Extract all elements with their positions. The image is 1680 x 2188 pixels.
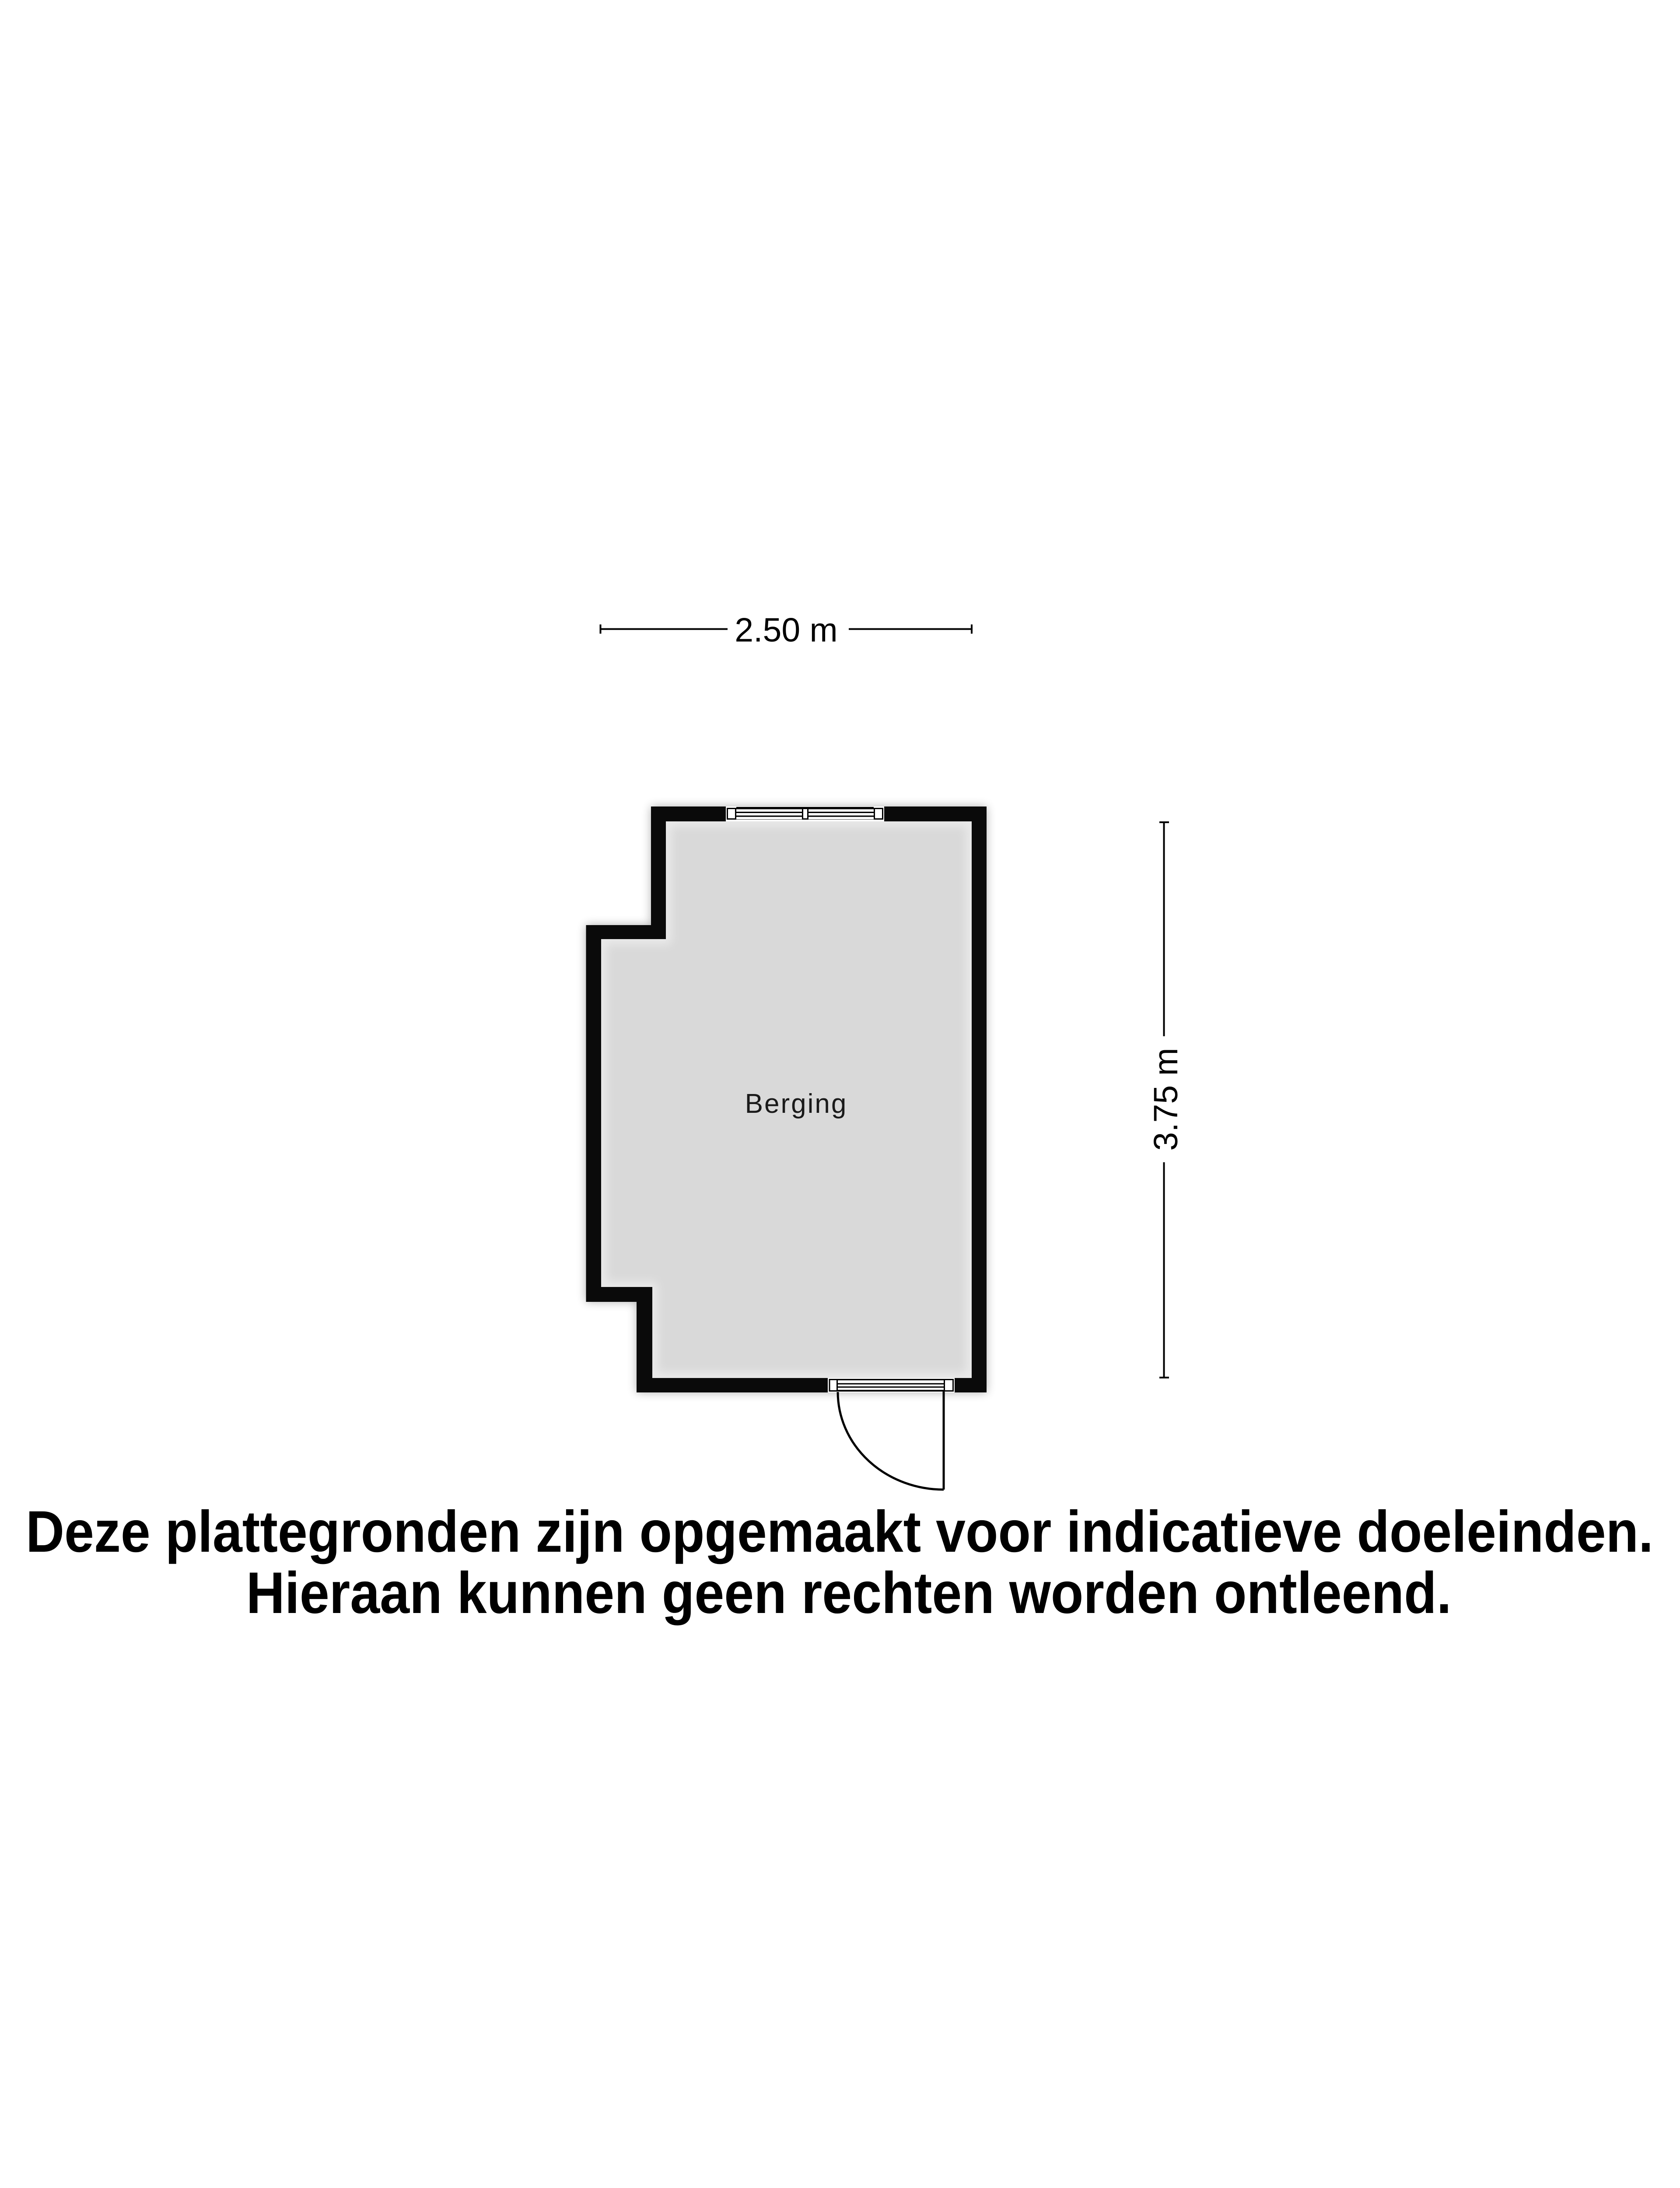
- svg-text:Hieraan kunnen geen rechten wo: Hieraan kunnen geen rechten worden ontle…: [246, 1560, 1452, 1626]
- svg-text:Deze plattegronden zijn opgema: Deze plattegronden zijn opgemaakt voor i…: [26, 1499, 1653, 1564]
- svg-text:3.75 m: 3.75 m: [1147, 1048, 1185, 1150]
- svg-text:2.50 m: 2.50 m: [735, 611, 837, 649]
- svg-text:Berging: Berging: [745, 1089, 848, 1119]
